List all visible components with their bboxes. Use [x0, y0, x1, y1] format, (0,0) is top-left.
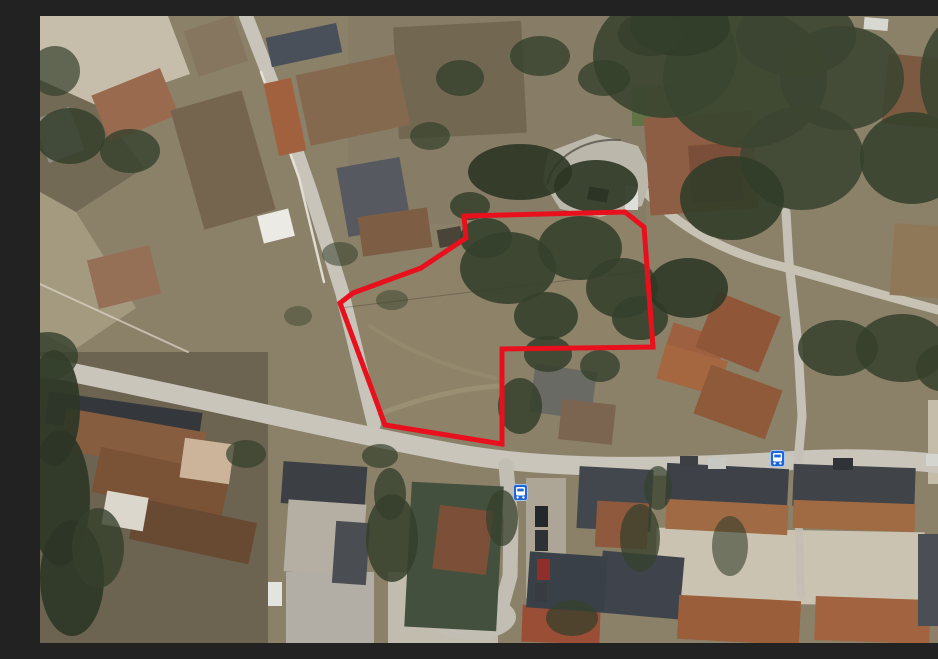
tree	[436, 60, 484, 96]
bus-glyph-wheel	[773, 462, 775, 464]
bus-stop-icon[interactable]	[514, 485, 528, 501]
tree	[498, 378, 542, 434]
bush	[226, 440, 266, 468]
tree	[410, 122, 450, 150]
car	[833, 458, 853, 470]
tree	[578, 60, 630, 96]
aerial-map	[40, 16, 938, 643]
tree	[100, 129, 160, 173]
building	[918, 534, 938, 626]
tree	[580, 350, 620, 382]
bus-glyph-wheel	[522, 496, 524, 498]
bush	[284, 306, 312, 326]
bush	[376, 290, 408, 310]
building	[179, 438, 234, 485]
car	[680, 456, 698, 467]
tree	[510, 36, 570, 76]
building	[558, 399, 616, 444]
tree	[644, 466, 672, 510]
car	[864, 17, 889, 31]
bush	[322, 242, 358, 266]
tree	[72, 508, 124, 588]
car	[708, 458, 726, 469]
bus-stop-icon[interactable]	[771, 451, 785, 467]
car	[535, 530, 548, 551]
tree	[648, 258, 728, 318]
bush	[362, 444, 398, 468]
building	[890, 223, 938, 301]
tree	[712, 516, 748, 576]
tree	[524, 336, 572, 372]
car	[537, 559, 550, 580]
car	[535, 506, 548, 527]
bus-glyph-windshield	[774, 455, 780, 458]
aerial-photo-canvas	[40, 16, 938, 643]
car	[268, 582, 282, 606]
tree	[680, 156, 784, 240]
bus-glyph-windshield	[517, 489, 523, 492]
tree	[546, 600, 598, 636]
car	[535, 583, 547, 602]
bus-glyph-wheel	[779, 462, 781, 464]
building	[332, 521, 370, 585]
building	[814, 596, 930, 643]
building	[793, 500, 916, 532]
building	[677, 595, 801, 643]
car	[926, 454, 938, 466]
bus-glyph-wheel	[516, 496, 518, 498]
tree	[554, 160, 638, 212]
tree	[514, 292, 578, 340]
tree	[374, 468, 406, 520]
courtyard	[655, 528, 924, 607]
building	[432, 505, 493, 575]
tree	[620, 504, 660, 572]
